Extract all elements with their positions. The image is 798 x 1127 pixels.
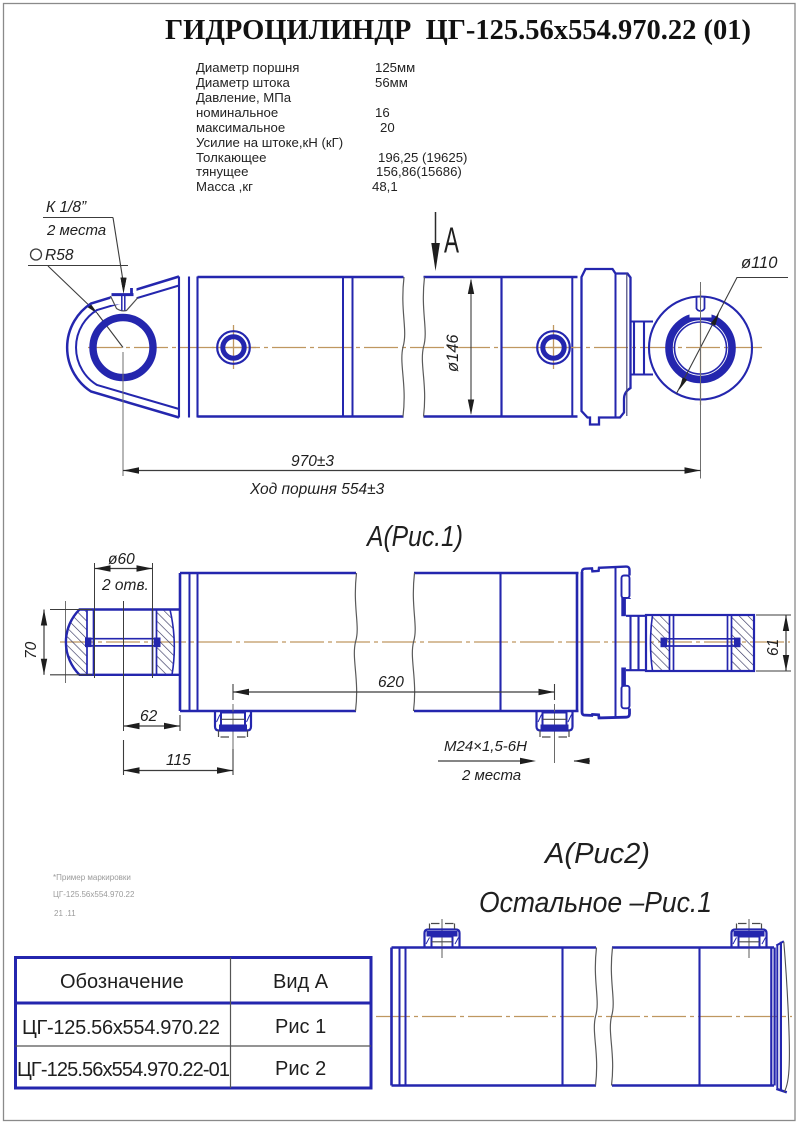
svg-text:56мм: 56мм bbox=[375, 75, 408, 90]
svg-text:К 1/8”: К 1/8” bbox=[46, 199, 87, 216]
svg-text:М24×1,5-6Н: М24×1,5-6Н bbox=[444, 738, 527, 755]
svg-text:А: А bbox=[444, 220, 459, 261]
svg-text:Толкающее: Толкающее bbox=[196, 150, 266, 165]
svg-text:48,1: 48,1 bbox=[372, 179, 398, 194]
svg-text:ø60: ø60 bbox=[108, 551, 135, 568]
svg-text:70: 70 bbox=[23, 641, 40, 659]
svg-text:Давление, МПа: Давление, МПа bbox=[196, 90, 292, 105]
svg-text:2 места: 2 места bbox=[46, 222, 106, 239]
svg-text:ø110: ø110 bbox=[741, 254, 778, 272]
svg-text:Диаметр штока: Диаметр штока bbox=[196, 75, 290, 90]
svg-text:Рис 1: Рис 1 bbox=[275, 1016, 326, 1038]
svg-text:Обозначение: Обозначение bbox=[60, 971, 184, 993]
svg-text:R58: R58 bbox=[45, 247, 74, 264]
svg-text:Масса ,кг: Масса ,кг bbox=[196, 179, 253, 194]
svg-text:620: 620 bbox=[378, 674, 404, 691]
svg-text:*Пример маркировки: *Пример маркировки bbox=[53, 873, 131, 882]
svg-text:номинальное: номинальное bbox=[196, 105, 278, 120]
svg-text:Диаметр поршня: Диаметр поршня bbox=[196, 60, 299, 75]
svg-text:ЦГ-125.56х554.970.22: ЦГ-125.56х554.970.22 bbox=[22, 1017, 220, 1039]
svg-text:196,25 (19625): 196,25 (19625) bbox=[378, 150, 467, 165]
svg-text:21 .11: 21 .11 bbox=[54, 909, 76, 918]
svg-text:Ход поршня 554±3: Ход поршня 554±3 bbox=[249, 481, 385, 498]
svg-text:ЦГ-125.56х554.970.22-01: ЦГ-125.56х554.970.22-01 bbox=[17, 1059, 230, 1081]
svg-text:61: 61 bbox=[765, 639, 782, 656]
svg-text:20: 20 bbox=[380, 120, 395, 135]
svg-text:ЦГ-125.56х554.970.22: ЦГ-125.56х554.970.22 bbox=[53, 890, 135, 899]
svg-text:Вид А: Вид А bbox=[273, 971, 329, 993]
svg-text:ø146: ø146 bbox=[444, 334, 462, 372]
svg-text:125мм: 125мм bbox=[375, 60, 415, 75]
svg-text:62: 62 bbox=[140, 708, 158, 725]
svg-text:Рис 2: Рис 2 bbox=[275, 1058, 326, 1080]
svg-text:16: 16 bbox=[375, 105, 390, 120]
svg-text:А(Рис.1): А(Рис.1) bbox=[365, 521, 463, 553]
svg-text:ГИДРОЦИЛИНДР ЦГ-125.56х554.97: ГИДРОЦИЛИНДР ЦГ-125.56х554.970.22 (01) bbox=[165, 15, 751, 46]
svg-text:970±3: 970±3 bbox=[291, 453, 334, 470]
svg-text:2 отв.: 2 отв. bbox=[101, 577, 149, 594]
svg-text:тянущее: тянущее bbox=[196, 164, 248, 179]
svg-text:А(Рис2): А(Рис2) bbox=[543, 838, 650, 870]
svg-text:максимальное: максимальное bbox=[196, 120, 285, 135]
svg-text:156,86(15686): 156,86(15686) bbox=[376, 164, 462, 179]
svg-text:Остальное –Рис.1: Остальное –Рис.1 bbox=[479, 887, 712, 919]
svg-text:Усилие на штоке,кН (кГ): Усилие на штоке,кН (кГ) bbox=[196, 135, 343, 150]
svg-text:115: 115 bbox=[166, 752, 191, 769]
svg-text:2 места: 2 места bbox=[461, 767, 521, 784]
